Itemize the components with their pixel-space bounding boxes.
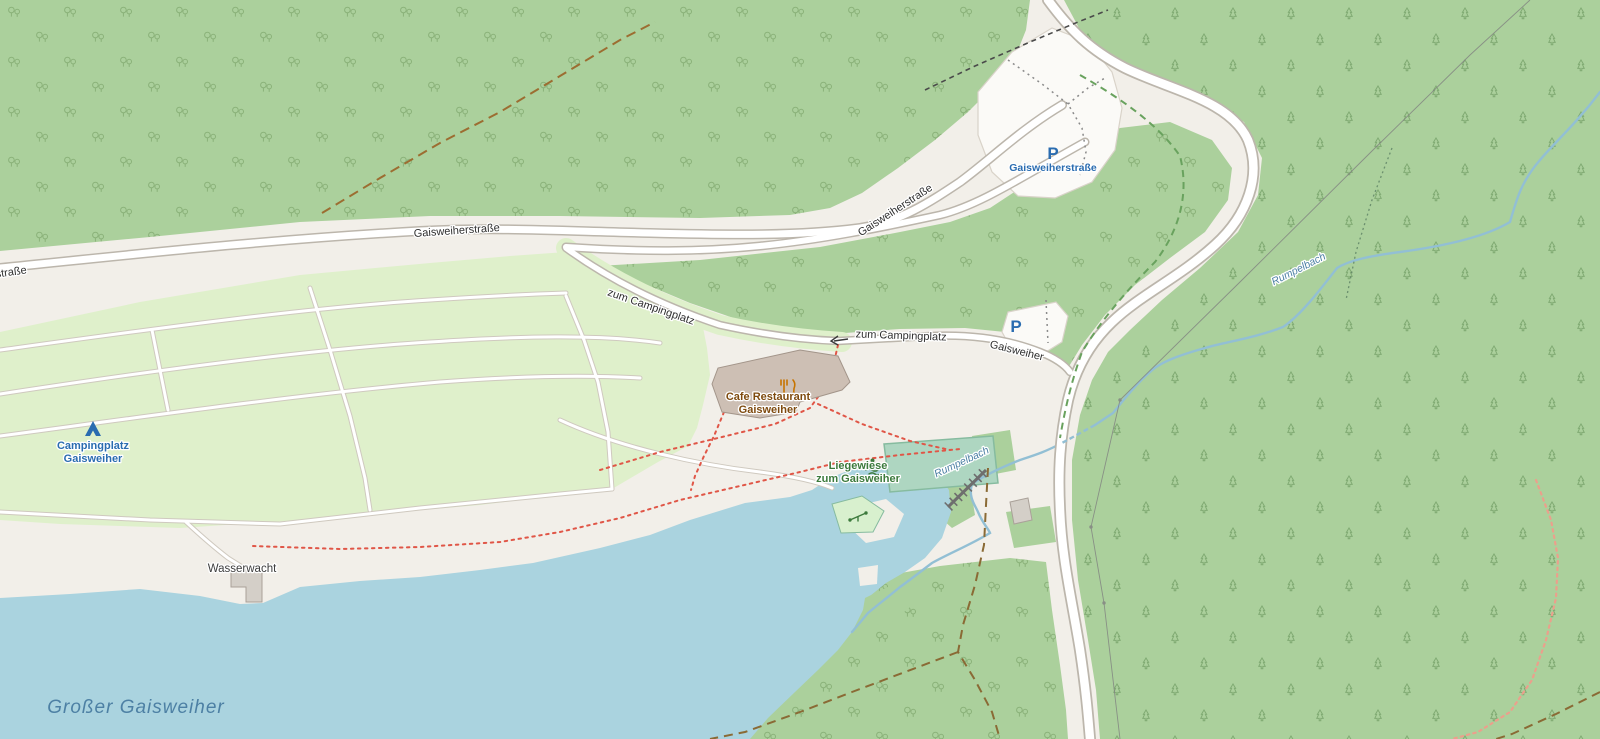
swimming-pitch xyxy=(884,436,998,492)
restaurant-label-line2: Gaisweiher xyxy=(739,404,798,416)
parking-icon-top: P xyxy=(1047,144,1058,163)
parking-icon-middle: P xyxy=(1010,317,1021,336)
campsite-label-line2: Gaisweiher xyxy=(64,453,123,465)
pond-island-small xyxy=(858,565,878,586)
small-building xyxy=(1010,498,1032,524)
lake-label: Großer Gaisweiher xyxy=(47,697,225,718)
meadow-label-line2: zum Gaisweiher xyxy=(816,473,900,485)
meadow-label-line1: Liegewiese xyxy=(829,460,888,472)
wasserwacht-label: Wasserwacht xyxy=(208,563,277,575)
map-tiles[interactable]: Gaisweiherstraße Gaisweiherstraße Gaiswe… xyxy=(0,0,1600,739)
restaurant-label-line1: Cafe Restaurant xyxy=(726,391,811,403)
parking-name-label: Gaisweiherstraße xyxy=(1009,162,1097,174)
map-canvas[interactable]: Gaisweiherstraße Gaisweiherstraße Gaiswe… xyxy=(0,0,1600,739)
campsite-label-line1: Campingplatz xyxy=(57,440,130,452)
